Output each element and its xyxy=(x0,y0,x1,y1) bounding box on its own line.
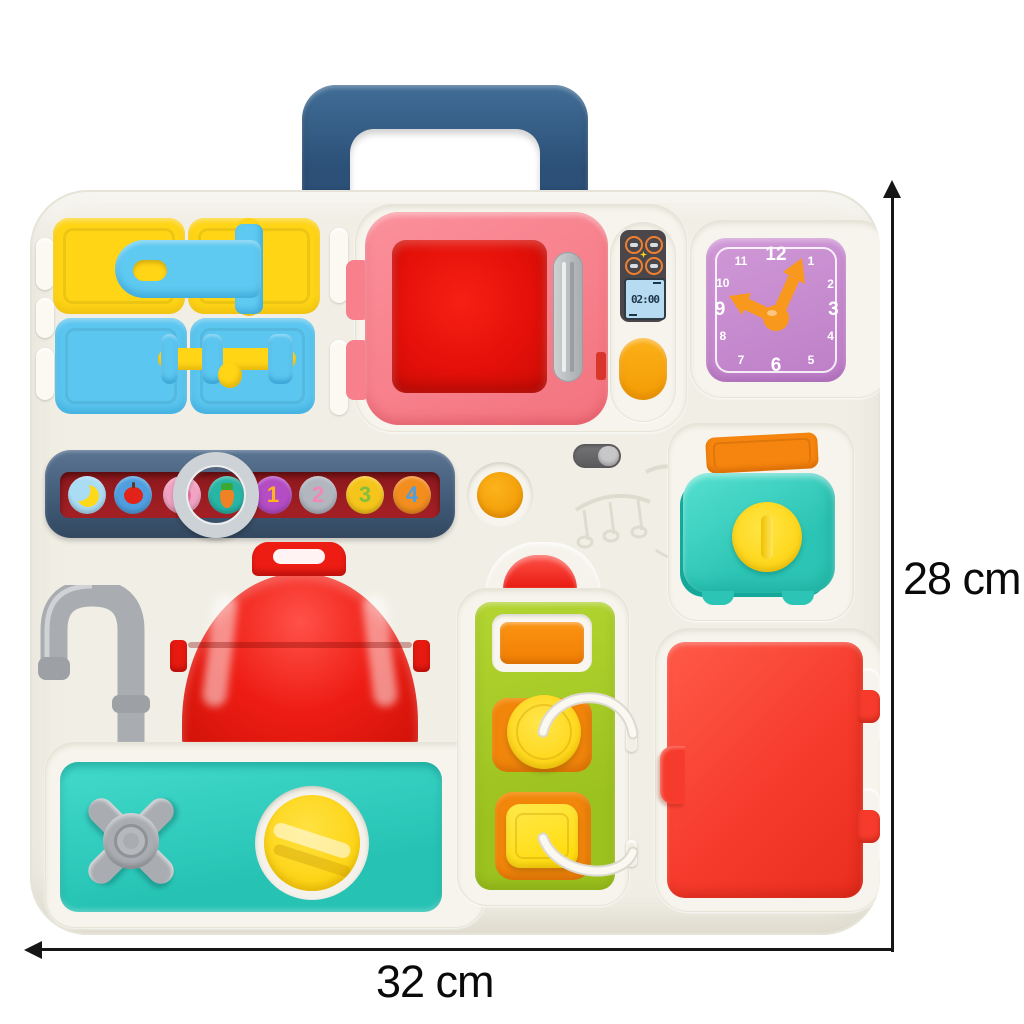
clock-panel: 12 1 2 3 4 5 6 7 8 9 10 11 xyxy=(690,220,880,398)
latch-hole xyxy=(133,260,167,281)
arrow-up-icon xyxy=(883,180,901,198)
sink-knob xyxy=(264,795,360,891)
toaster-knob xyxy=(732,502,802,572)
hour-hand xyxy=(746,304,776,318)
toast-slice xyxy=(705,432,819,474)
clock-number: 2 xyxy=(827,277,834,291)
microwave-latch xyxy=(596,352,606,380)
clock-number: 1 xyxy=(808,254,815,268)
clock-number: 4 xyxy=(827,329,834,343)
pot-body xyxy=(182,573,418,749)
food-icon-broccoli xyxy=(645,236,663,254)
hinge-pin xyxy=(36,348,54,400)
lacing-strings xyxy=(485,670,650,895)
tile-number-2: 2 xyxy=(299,476,337,514)
pot-handle-left xyxy=(170,640,187,672)
microwave-frame xyxy=(365,212,608,425)
slide-latch xyxy=(115,240,261,298)
product-photo: 02:00 xyxy=(0,0,1024,1024)
clock-hands xyxy=(706,238,846,382)
food-icon-noodles xyxy=(625,257,643,275)
clock-face: 12 1 2 3 4 5 6 7 8 9 10 11 xyxy=(706,238,846,382)
switch-frame xyxy=(492,614,592,672)
number-3-label: 3 xyxy=(346,476,384,514)
carry-handle xyxy=(302,85,588,197)
minute-hand-arrowhead xyxy=(783,258,805,284)
number-4-label: 4 xyxy=(393,476,431,514)
microwave-handle xyxy=(553,252,583,382)
orange-switch xyxy=(500,622,584,664)
round-orange-button xyxy=(477,472,523,518)
handle-opening xyxy=(350,129,540,199)
bolt-bracket xyxy=(268,334,293,384)
timer-display: 02:00 xyxy=(624,278,666,320)
clock-number: 12 xyxy=(765,244,786,266)
control-strip-panel: 02:00 xyxy=(610,222,676,422)
number-2-label: 2 xyxy=(299,476,337,514)
fridge-handle xyxy=(660,746,685,804)
hour-hand-arrowhead xyxy=(729,293,751,315)
tile-number-1: 1 xyxy=(254,476,292,514)
width-dimension-line xyxy=(38,948,894,951)
tile-banana xyxy=(68,476,106,514)
clock-number: 5 xyxy=(808,353,815,367)
fridge-door xyxy=(667,642,863,898)
clock-number: 8 xyxy=(719,329,726,343)
slider-ring xyxy=(173,452,259,538)
cross-valve-hub xyxy=(103,813,159,869)
arrow-left-icon xyxy=(24,941,42,959)
microwave-control-panel: 02:00 xyxy=(620,230,666,322)
sink-knob-ring xyxy=(255,786,369,900)
bolt-latch-knob xyxy=(218,362,242,388)
pot-handle-right xyxy=(413,640,430,672)
tile-number-4: 4 xyxy=(393,476,431,514)
tile-apple xyxy=(114,476,152,514)
clock-number: 7 xyxy=(738,353,745,367)
food-icon-drumstick xyxy=(625,236,643,254)
busy-board: 02:00 xyxy=(30,190,880,935)
minute-hand xyxy=(776,278,794,318)
food-icon-fish xyxy=(645,257,663,275)
hinge-pin xyxy=(36,298,54,338)
toaster-foot xyxy=(782,591,814,605)
microwave-start-button xyxy=(619,338,667,400)
height-dimension-line xyxy=(891,196,894,952)
width-label: 32 cm xyxy=(376,956,494,1008)
pot-lid-seam xyxy=(188,642,412,648)
banana-icon xyxy=(75,483,102,510)
clock-hub xyxy=(763,305,789,331)
apple-icon xyxy=(124,487,143,504)
toaster-foot xyxy=(702,591,734,605)
fridge-hinge-bottom xyxy=(858,810,880,843)
bolt-bracket xyxy=(161,334,178,384)
tile-number-3: 3 xyxy=(346,476,384,514)
fridge-hinge-top xyxy=(858,690,880,723)
hinge-pin xyxy=(36,238,54,290)
clock-number: 9 xyxy=(715,299,726,321)
clock-number: 11 xyxy=(735,254,748,268)
round-button-recess xyxy=(467,462,533,528)
pot-lid-knob xyxy=(252,542,346,576)
height-label: 28 cm xyxy=(903,553,1021,605)
clock-number: 10 xyxy=(716,276,729,290)
microwave-window xyxy=(392,240,547,393)
number-1-label: 1 xyxy=(254,476,292,514)
